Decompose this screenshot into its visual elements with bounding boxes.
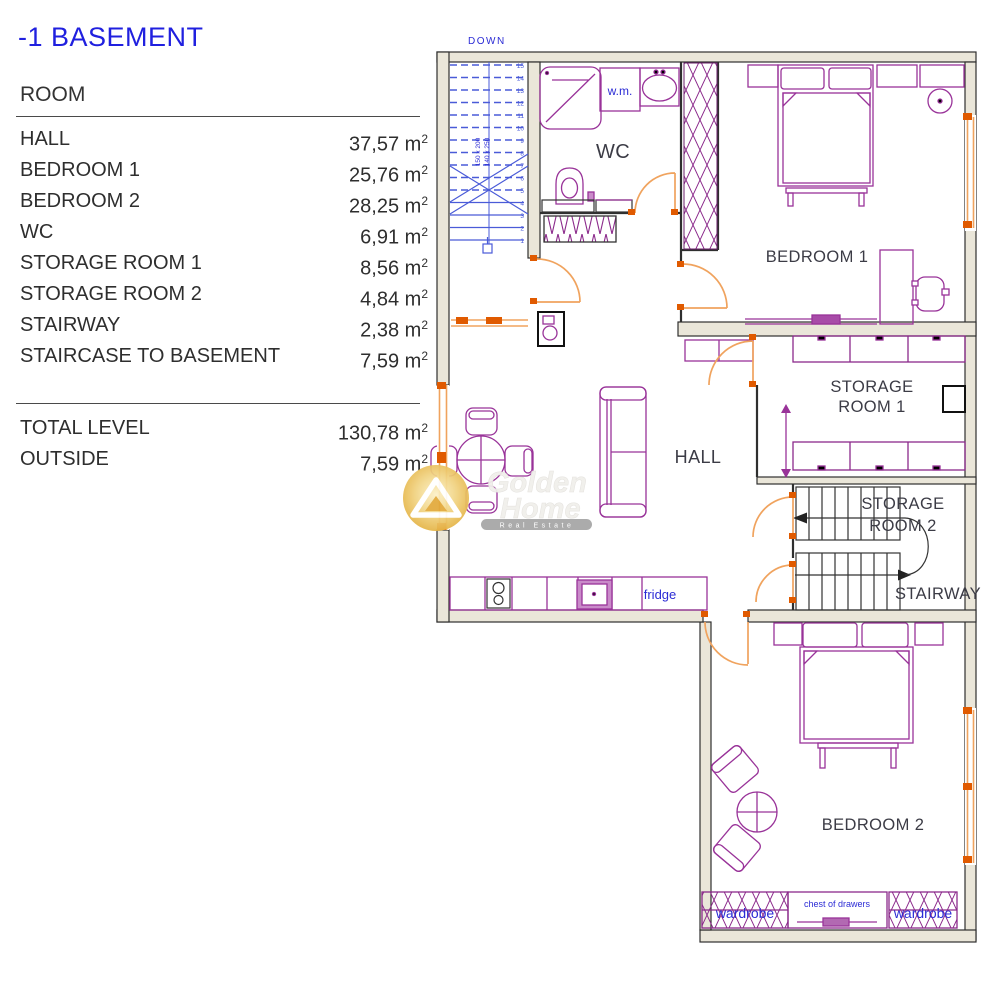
stairway-door xyxy=(756,561,796,603)
wall-box xyxy=(943,386,965,412)
armchair-icon xyxy=(712,823,763,874)
fridge-label: fridge xyxy=(644,587,677,602)
staircase-to-basement: 151413121110987654321 DOWN 150 x 200 140… xyxy=(450,36,528,253)
svg-text:8: 8 xyxy=(520,151,524,158)
armchair-icon xyxy=(710,744,761,795)
washing-machine-label: w.m. xyxy=(607,84,633,98)
stairs-down-label: DOWN xyxy=(468,36,506,47)
radiator-icon xyxy=(544,216,616,242)
wardrobe-left-label: wardrobe xyxy=(715,905,775,921)
double-bed-icon xyxy=(778,65,873,206)
sink-icon xyxy=(640,68,679,106)
svg-text:15: 15 xyxy=(517,63,525,70)
svg-text:6: 6 xyxy=(520,176,524,183)
svg-text:14: 14 xyxy=(517,76,525,83)
room-label-wc: WC xyxy=(596,141,630,163)
boiler-icon xyxy=(538,312,564,346)
basement-stairs-door xyxy=(530,255,580,304)
washing-machine-icon: w.m. xyxy=(600,68,640,111)
svg-text:5: 5 xyxy=(520,188,524,195)
closet-hatch xyxy=(684,63,717,249)
sliding-door-icon xyxy=(781,404,791,478)
svg-text:2: 2 xyxy=(520,226,524,233)
room-storage2-stairway: STORAGE ROOM 2 STAIRWAY xyxy=(793,487,981,610)
shelves-bottom xyxy=(793,442,965,470)
stair-landing-window xyxy=(451,317,528,326)
room-label-storage1-line2: ROOM 1 xyxy=(838,398,906,416)
bedroom1-door xyxy=(677,261,727,310)
room-label-hall: HALL xyxy=(675,447,722,467)
kitchen-counter: fridge xyxy=(450,577,707,610)
room-wc: w.m. WC xyxy=(540,67,679,242)
svg-text:12: 12 xyxy=(517,101,525,108)
floorplan-page: -1 BASEMENT ROOM HALL37,57 m2 BEDROOM 12… xyxy=(0,0,1000,1000)
stairs-dimension-1: 150 x 200 xyxy=(475,137,482,166)
room-bedroom1: BEDROOM 1 xyxy=(745,65,964,324)
desk-icon xyxy=(880,250,913,324)
kitchen-sink-icon xyxy=(577,580,612,609)
toilet-icon xyxy=(556,168,594,204)
room-label-storage1-line1: STORAGE xyxy=(830,378,913,396)
watermark-tagline: Real Estate xyxy=(500,523,575,530)
hob-icon xyxy=(487,579,510,608)
room-label-bedroom2: BEDROOM 2 xyxy=(822,816,925,834)
sofa-icon xyxy=(600,387,646,517)
ceiling-lamp-icon xyxy=(928,89,952,113)
chest-of-drawers-label: chest of drawers xyxy=(804,899,871,909)
stairs-dimension-2: 140 x 250 xyxy=(484,137,491,166)
storage2-door xyxy=(753,492,796,539)
svg-text:10: 10 xyxy=(517,126,525,133)
stair-step-numbers: 151413121110987654321 xyxy=(517,63,525,245)
room-bedroom2: wardrobe chest of drawers wardrobe BEDRO… xyxy=(702,623,957,928)
svg-text:4: 4 xyxy=(520,201,524,208)
room-label-stairway: STAIRWAY xyxy=(895,585,981,603)
svg-text:9: 9 xyxy=(520,138,524,145)
room-storage1: STORAGE ROOM 1 xyxy=(781,336,965,478)
svg-text:11: 11 xyxy=(517,113,524,120)
shelves-top xyxy=(793,336,965,362)
shower-icon xyxy=(540,67,601,129)
svg-text:7: 7 xyxy=(520,163,524,170)
double-bed-icon xyxy=(800,623,913,768)
room-hall: fridge HALL xyxy=(431,312,753,610)
svg-text:1: 1 xyxy=(520,238,524,245)
wardrobe-left: wardrobe xyxy=(702,892,788,928)
wc-door xyxy=(628,173,678,215)
desk-chair-icon xyxy=(912,277,949,311)
watermark: Golden Home Real Estate xyxy=(403,465,592,531)
side-table-icon xyxy=(737,792,777,832)
floorplan-drawing: 151413121110987654321 DOWN 150 x 200 140… xyxy=(0,0,1000,1000)
wardrobe-right: wardrobe xyxy=(889,892,957,928)
chest-of-drawers: chest of drawers xyxy=(788,892,887,928)
room-label-storage2-line1: STORAGE xyxy=(861,495,944,513)
wardrobe-right-label: wardrobe xyxy=(893,905,953,921)
svg-text:3: 3 xyxy=(520,213,524,220)
room-label-bedroom1: BEDROOM 1 xyxy=(766,248,869,266)
room-label-storage2-line2: ROOM 2 xyxy=(869,517,937,535)
svg-text:13: 13 xyxy=(517,88,525,95)
